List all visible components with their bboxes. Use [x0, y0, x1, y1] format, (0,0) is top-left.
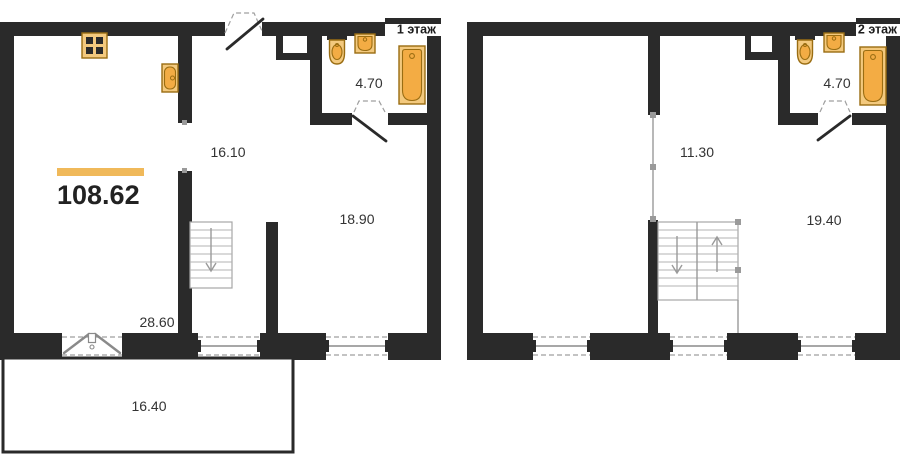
stairs-up-down-icon [658, 222, 738, 300]
washbasin-icon [824, 33, 844, 52]
floor2-bottom-wall-4 [855, 333, 900, 360]
floor1-bathroom-bottom-wall-left [310, 113, 352, 125]
toilet-icon [795, 32, 815, 64]
floor1-top-wall-left [0, 22, 225, 36]
wall-node [182, 120, 187, 125]
floor1-bottom-wall-3 [260, 333, 326, 360]
floor2-right-wall [886, 36, 900, 360]
floor1-window-2 [325, 333, 389, 360]
window-nub [852, 340, 856, 352]
room-area-label-living: 18.90 [339, 211, 374, 227]
stove-icon [82, 33, 107, 58]
door-swing-icon [354, 101, 385, 112]
floor2-bottom-wall-2 [590, 333, 670, 360]
floor2-bottom-wall-1 [467, 333, 533, 360]
floor2-window-3 [797, 333, 856, 360]
floor-plan-canvas: 108.62 1 этаж 16.10 18.90 4.70 28.60 16.… [0, 0, 900, 461]
wall-node [735, 219, 741, 225]
wall-node [650, 216, 656, 222]
floor1-bottom-wall-4 [388, 333, 441, 360]
floor1-window-1 [197, 333, 261, 360]
floor2-hall-wall-upper [648, 36, 660, 115]
window-nub [325, 340, 329, 352]
window-nub [197, 340, 201, 352]
floor1-left-wall [0, 22, 14, 360]
wall-node [735, 267, 741, 273]
floor2-bottom-wall-3 [727, 333, 798, 360]
floor2-left-wall [467, 22, 483, 360]
floor2-bathroom-bottom-wall-left [778, 113, 818, 125]
room-area-label-bedroom: 19.40 [806, 212, 841, 228]
room-area-label-hall2: 11.30 [680, 144, 714, 160]
door-knob-icon [89, 334, 96, 343]
floor2-bathroom-bottom-wall-right [852, 113, 888, 125]
floor1-title: 1 этаж [397, 23, 436, 37]
floor2-window-1 [532, 333, 591, 360]
window-nub [532, 340, 536, 352]
kitchen-sink-icon [162, 64, 178, 92]
floor2-bathroom-door [818, 101, 852, 140]
floor-plan-drawing: 108.62 1 этаж 16.10 18.90 4.70 28.60 16.… [0, 0, 900, 461]
window-nub [385, 340, 389, 352]
floor1-bathroom-bottom-wall-right [388, 113, 427, 125]
floor2-stairs [658, 219, 741, 333]
floor1-bottom-wall-2 [122, 333, 198, 360]
floor1-terrace-door [62, 333, 122, 360]
floor1-right-wall [427, 36, 441, 360]
room-area-label-bathroom2: 4.70 [823, 75, 850, 91]
window-nub [669, 340, 673, 352]
window-nub [257, 340, 261, 352]
total-area-accent-bar [57, 168, 144, 176]
room-area-label-kitchen: 16.10 [210, 144, 245, 160]
room-area-label-hall1: 28.60 [139, 314, 174, 330]
wall-node [650, 164, 656, 170]
floor2-duct-shaft [751, 36, 772, 52]
window-nub [724, 340, 728, 352]
total-area-label: 108.62 [57, 180, 140, 210]
door-swing-icon [820, 101, 850, 112]
floor2-window-2 [669, 333, 728, 360]
floor1-kitchen-wall-upper [178, 36, 192, 123]
window-nub [797, 340, 801, 352]
washbasin-icon [355, 34, 375, 53]
floor1-bathroom-left-wall [310, 36, 322, 125]
floor1-bottom-wall-1 [0, 333, 62, 360]
floor2-stair-wall [648, 220, 658, 333]
floor1-duct-shaft [283, 36, 307, 53]
floor1-plan: 108.62 1 этаж 16.10 18.90 4.70 28.60 16.… [0, 13, 441, 452]
room-area-label-bathroom1: 4.70 [355, 75, 382, 91]
floor2-plan: 2 этаж 11.30 19.40 4.70 [467, 18, 900, 360]
floor1-bathroom-door [352, 101, 388, 141]
room-area-label-terrace: 16.40 [131, 398, 166, 414]
floor2-bathroom-left-wall [778, 36, 790, 125]
floor1-entry-door [225, 13, 263, 49]
toilet-icon [327, 32, 347, 64]
wall-node [182, 168, 187, 173]
window-nub [587, 340, 591, 352]
floor1-room-divider-wall [266, 222, 278, 333]
bathtub-icon [860, 47, 886, 105]
floor2-title: 2 этаж [858, 23, 897, 37]
bathtub-icon [399, 46, 425, 104]
floor1-stairs [190, 222, 232, 288]
wall-node [650, 112, 656, 118]
